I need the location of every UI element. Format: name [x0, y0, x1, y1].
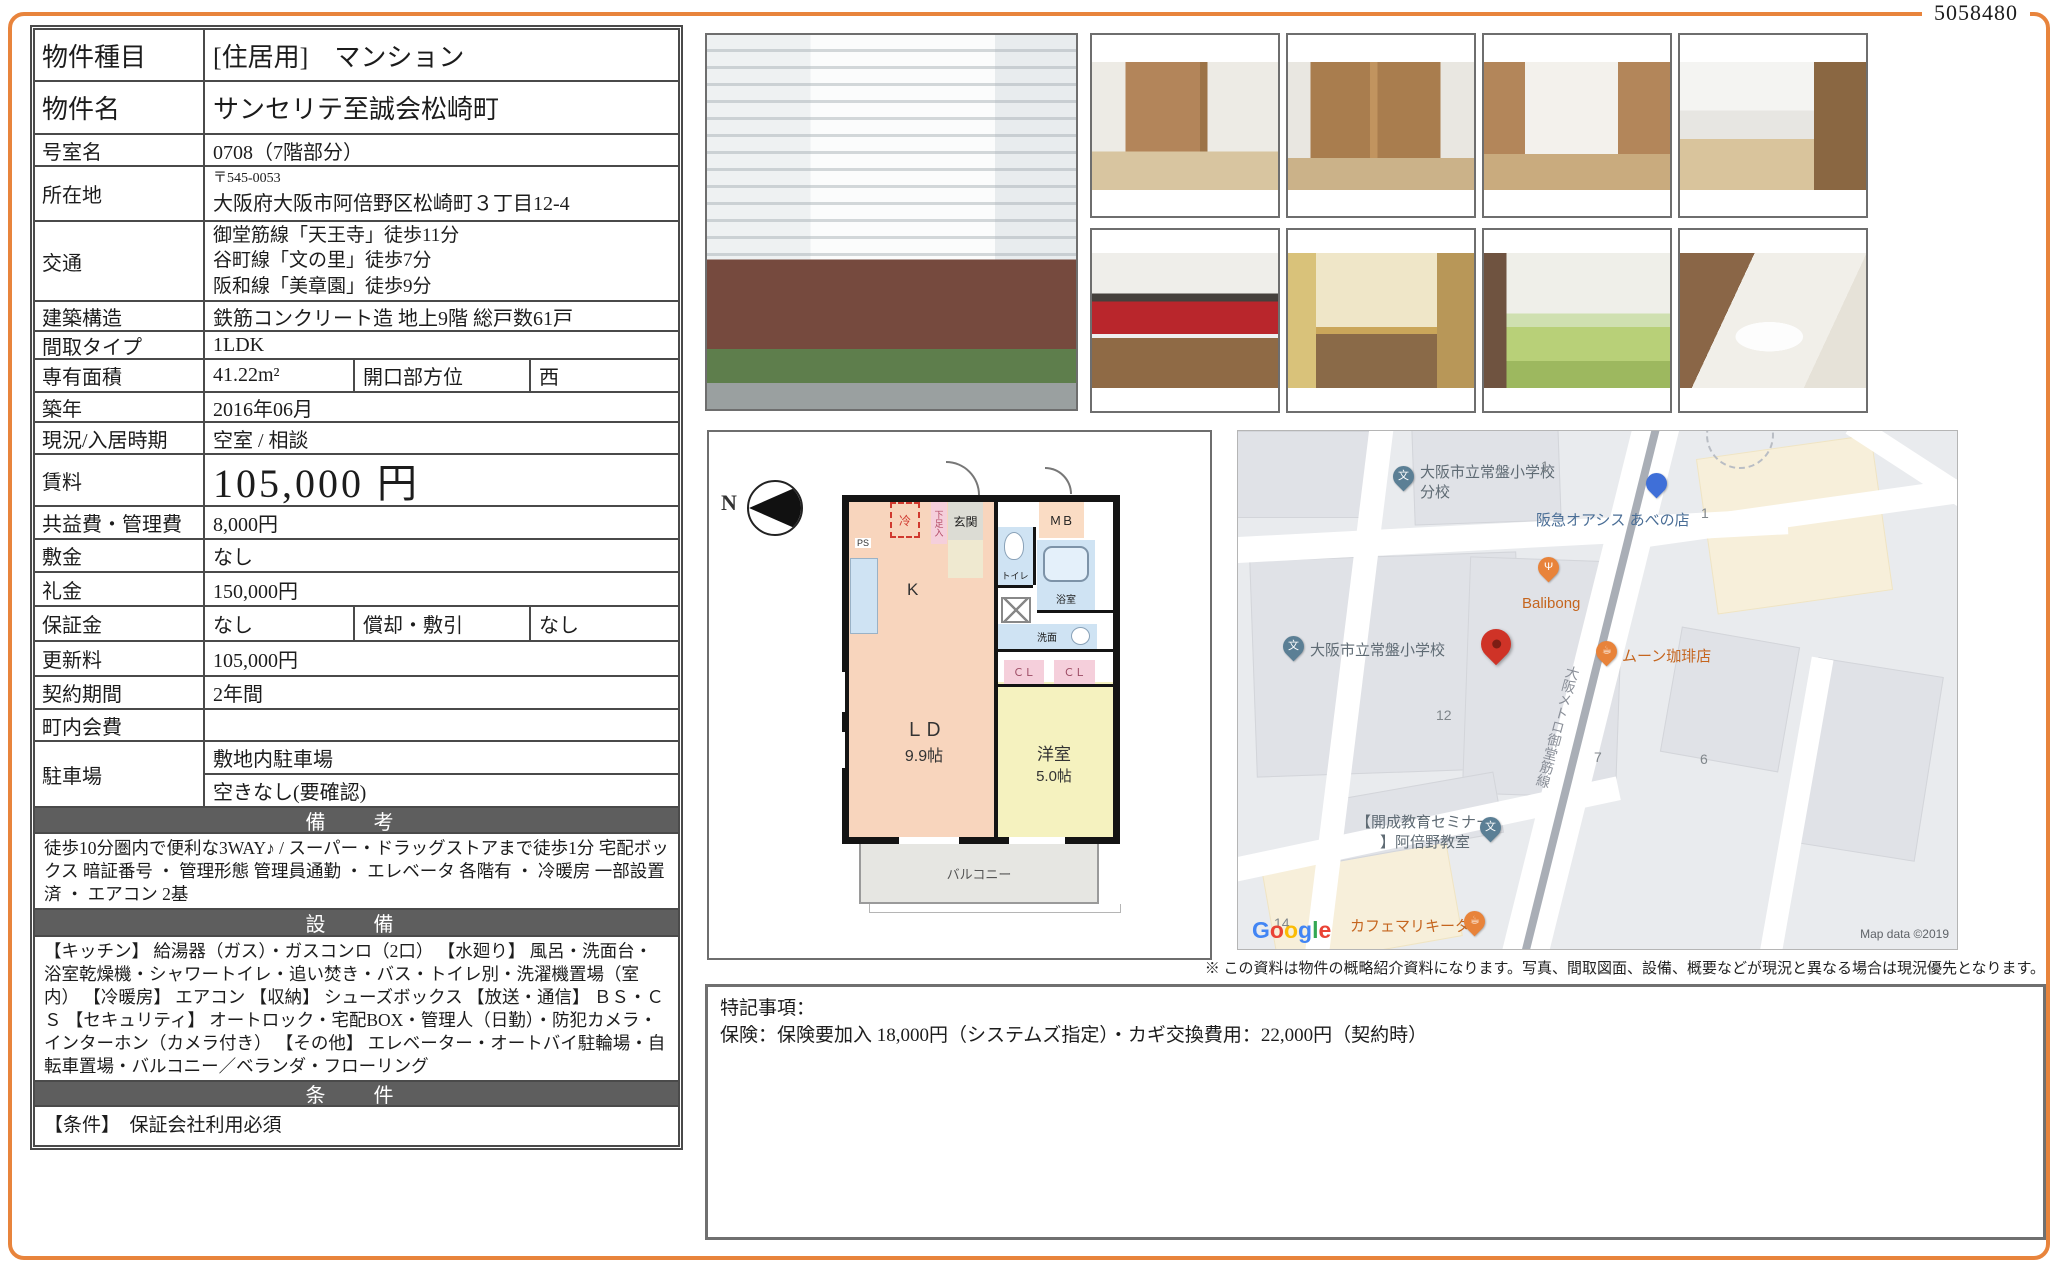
- row-label: 契約期間: [35, 677, 205, 708]
- room-meter-box: ＭＢ: [1039, 502, 1084, 538]
- window-gap: [838, 672, 845, 712]
- building-exterior-photo: [707, 35, 1076, 409]
- photo-thumb-6: [1286, 228, 1476, 413]
- table-row: 礼金150,000円: [35, 571, 678, 605]
- row-label: 物件名: [35, 82, 205, 133]
- room-closet-photo: [1092, 62, 1278, 190]
- room-entrance: 玄関: [948, 502, 983, 540]
- living-room-photo: [1680, 62, 1866, 190]
- plan-wall: [1037, 610, 1113, 613]
- special-notes-body: 保険：保険要加入 18,000円（システムズ指定）・カギ交換費用：22,000円…: [720, 1020, 2031, 1047]
- room-hallway: [948, 540, 983, 578]
- parking-line2: 空きなし(要確認): [205, 773, 678, 806]
- row-value: 105,000円: [205, 642, 678, 675]
- window-gap: [838, 732, 845, 768]
- kitchen-photo: [1092, 253, 1278, 388]
- closet-2: ＣＬ: [1054, 660, 1095, 684]
- table-row: 保証金なし償却・敷引なし: [35, 605, 678, 640]
- special-notes-box: 特記事項： 保険：保険要加入 18,000円（システムズ指定）・カギ交換費用：2…: [705, 984, 2046, 1240]
- plan-wall: [1033, 527, 1036, 585]
- toilet-fixture-icon: [1004, 532, 1024, 560]
- room-fridge-space: 冷: [890, 502, 920, 538]
- row-label: 町内会費: [35, 710, 205, 740]
- table-row: 号室名0708（7階部分）: [35, 133, 678, 165]
- photo-thumb-1: [1090, 33, 1280, 218]
- compass-icon: [747, 480, 803, 536]
- washing-machine-icon: [1001, 597, 1031, 623]
- cafe2-label: カフェマリキータ: [1350, 917, 1470, 937]
- row-value: 150,000円: [205, 573, 678, 605]
- photo-thumb-3: [1482, 33, 1672, 218]
- postal-code: 〒545-0053: [213, 171, 281, 186]
- address-text: 大阪府大阪市阿倍野区松崎町３丁目12-4: [213, 187, 570, 216]
- row-label: 現況/入居時期: [35, 423, 205, 453]
- table-row: 現況/入居時期空室 / 相談: [35, 421, 678, 453]
- row-value: 敷地内駐車場空きなし(要確認): [205, 742, 678, 806]
- block-number: 7: [1594, 749, 1602, 765]
- row-sublabel: 償却・敷引: [355, 607, 531, 640]
- plan-wall: [994, 495, 998, 844]
- row-label: 建築構造: [35, 302, 205, 330]
- remarks-text: 徒歩10分圏内で便利な3WAY♪ / スーパー・ドラッグストアまで徒歩1分 宅配…: [35, 834, 678, 908]
- closet-1: ＣＬ: [1004, 660, 1044, 684]
- table-row: 専有面積41.22m²開口部方位西: [35, 358, 678, 391]
- row-label: 専有面積: [35, 360, 205, 391]
- google-logo: Google: [1252, 917, 1331, 944]
- section-header-remarks: 備 考: [35, 806, 678, 832]
- ld-label: ＬＤ9.9帖: [879, 715, 969, 767]
- room-shoebox: 下足入: [931, 502, 947, 544]
- conditions-text-row: 【条件】 保証会社利用必須: [35, 1105, 678, 1145]
- row-value: 〒545-0053大阪府大阪市阿倍野区松崎町３丁目12-4: [205, 167, 678, 220]
- balcony: バルコニー: [859, 844, 1099, 904]
- door-arc-icon: [946, 461, 980, 495]
- row-value: 2年間: [205, 677, 678, 708]
- table-row: 更新料105,000円: [35, 640, 678, 675]
- table-row: 物件名サンセリテ至誠会松崎町: [35, 80, 678, 133]
- row-label: 所在地: [35, 167, 205, 220]
- row-value: なし: [205, 607, 355, 640]
- plan-wall: [997, 585, 1033, 588]
- photo-thumb-5: [1090, 228, 1280, 413]
- section-header-conditions: 条 件: [35, 1080, 678, 1105]
- equipment-text-row: 【キッチン】 給湯器（ガス）・ガスコンロ（2口） 【水廻り】 風呂・洗面台・浴室…: [35, 935, 678, 1080]
- row-label: 物件種目: [35, 30, 205, 80]
- row-label: 築年: [35, 393, 205, 421]
- kitchen-label: K: [907, 580, 918, 600]
- row-subvalue: なし: [531, 607, 678, 640]
- row-label: 礼金: [35, 573, 205, 605]
- equipment-text: 【キッチン】 給湯器（ガス）・ガスコンロ（2口） 【水廻り】 風呂・洗面台・浴室…: [35, 937, 678, 1080]
- photo-thumb-4: [1678, 33, 1868, 218]
- row-value: なし: [205, 540, 678, 571]
- row-sublabel: 開口部方位: [355, 360, 531, 391]
- table-row: 共益費・管理費8,000円: [35, 505, 678, 538]
- row-value: 8,000円: [205, 507, 678, 538]
- table-row: 賃料105,000 円: [35, 453, 678, 505]
- transit-line: 阪和線「美章園」徒歩9分: [213, 274, 432, 300]
- section-header-equipment: 設 備: [35, 908, 678, 935]
- western-room-label: 洋室5.0帖: [1009, 740, 1099, 786]
- open-closet-photo: [1484, 62, 1670, 190]
- table-row: 町内会費: [35, 708, 678, 740]
- cafe-label: ムーン珈琲店: [1622, 647, 1711, 667]
- compass-north-label: N: [721, 490, 737, 516]
- transit-line: 谷町線「文の里」徒歩7分: [213, 248, 432, 274]
- row-label: 敷金: [35, 540, 205, 571]
- row-value: 1LDK: [205, 332, 678, 358]
- transit-line: 御堂筋線「天王寺」徒歩11分: [213, 223, 459, 249]
- document-number: 5058480: [1922, 0, 2030, 26]
- balcony-step-line: [869, 904, 1121, 913]
- plan-wall: [996, 684, 1113, 687]
- conditions-text: 【条件】 保証会社利用必須: [35, 1107, 291, 1145]
- block-number: 1: [1701, 505, 1709, 521]
- building-photo-box: [705, 33, 1078, 411]
- door-arc-icon: [1045, 467, 1072, 494]
- row-value: 御堂筋線「天王寺」徒歩11分谷町線「文の里」徒歩7分阪和線「美章園」徒歩9分: [205, 222, 678, 300]
- bathtub-icon: [1043, 546, 1089, 582]
- school-label: 大阪市立常盤小学校: [1310, 641, 1445, 661]
- table-row: 所在地〒545-0053大阪府大阪市阿倍野区松崎町３丁目12-4: [35, 165, 678, 220]
- map-block: [1237, 431, 1375, 518]
- row-value: 2016年06月: [205, 393, 678, 421]
- row-value: サンセリテ至誠会松崎町: [205, 82, 678, 133]
- photo-thumb-8: [1678, 228, 1868, 413]
- table-row: 駐車場敷地内駐車場空きなし(要確認): [35, 740, 678, 806]
- photo-thumb-7: [1482, 228, 1672, 413]
- table-row: 敷金なし: [35, 538, 678, 571]
- row-label: 交通: [35, 222, 205, 300]
- window-gap: [899, 837, 959, 844]
- location-map: 大阪メトロ御堂筋線 文 大阪市立常盤小学校分校 1 阪急オアシス あべの店 1 …: [1237, 430, 1958, 950]
- toilet-photo: [1680, 253, 1866, 388]
- row-label: 賃料: [35, 455, 205, 505]
- table-row: 築年2016年06月: [35, 391, 678, 421]
- ps-label: PS: [855, 538, 871, 548]
- special-notes-title: 特記事項：: [720, 993, 2031, 1020]
- window-gap: [1009, 837, 1065, 844]
- row-value: [205, 710, 678, 740]
- row-label: 間取タイプ: [35, 332, 205, 358]
- row-label: 号室名: [35, 135, 205, 165]
- table-row: 間取タイプ1LDK: [35, 330, 678, 358]
- row-value: 0708（7階部分）: [205, 135, 678, 165]
- floor-plan: N 玄関 下足入 冷 ＭＢ トイレ 浴室 洗面 ＣＬ ＣＬ PS K ＬＤ9.9…: [707, 430, 1212, 960]
- row-label: 保証金: [35, 607, 205, 640]
- row-value: 空室 / 相談: [205, 423, 678, 453]
- row-label: 駐車場: [35, 742, 205, 806]
- bathroom-photo: [1484, 253, 1670, 388]
- table-row: 建築構造鉄筋コンクリート造 地上9階 総戸数61戸: [35, 300, 678, 330]
- block-number: 6: [1700, 751, 1708, 767]
- kitchen-counter-icon: [850, 558, 878, 634]
- school-branch-label: 大阪市立常盤小学校分校: [1420, 463, 1555, 502]
- row-subvalue: 西: [531, 360, 678, 391]
- washroom-photo: [1288, 253, 1474, 388]
- parking-line1: 敷地内駐車場: [205, 742, 678, 773]
- restaurant-label: Balibong: [1522, 594, 1580, 614]
- row-value: [住居用] マンション: [205, 30, 678, 80]
- table-row: 交通御堂筋線「天王寺」徒歩11分谷町線「文の里」徒歩7分阪和線「美章園」徒歩9分: [35, 220, 678, 300]
- photo-thumb-2: [1286, 33, 1476, 218]
- row-label: 共益費・管理費: [35, 507, 205, 538]
- disclaimer-text: ※ この資料は物件の概略紹介資料になります。写真、間取図面、設備、概要などが現況…: [705, 957, 2045, 978]
- sink-icon: [1071, 627, 1090, 645]
- block-number: 12: [1436, 707, 1452, 723]
- table-row: 物件種目[住居用] マンション: [35, 30, 678, 80]
- block-number: 1: [1541, 458, 1549, 474]
- property-table: 物件種目[住居用] マンション 物件名サンセリテ至誠会松崎町 号室名0708（7…: [30, 25, 683, 1150]
- plan-wall: [997, 649, 1113, 652]
- row-value: 41.22m²: [205, 360, 355, 391]
- row-label: 更新料: [35, 642, 205, 675]
- map-data-credit: Map data ©2019: [1860, 927, 1949, 941]
- table-row: 契約期間2年間: [35, 675, 678, 708]
- supermarket-label: 阪急オアシス あべの店: [1536, 511, 1716, 531]
- row-value: 鉄筋コンクリート造 地上9階 総戸数61戸: [205, 302, 678, 330]
- rent-value: 105,000 円: [205, 455, 678, 505]
- closet-doors-photo: [1288, 62, 1474, 190]
- remarks-text-row: 徒歩10分圏内で便利な3WAY♪ / スーパー・ドラッグストアまで徒歩1分 宅配…: [35, 832, 678, 908]
